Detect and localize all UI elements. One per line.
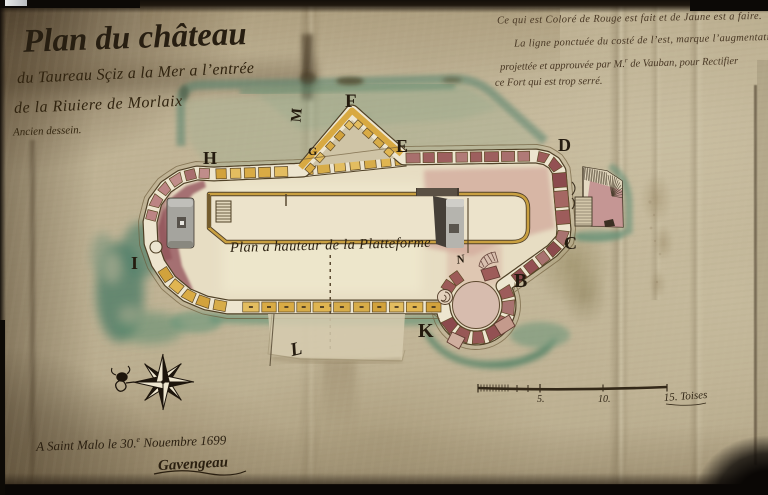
svg-text:G: G xyxy=(308,144,317,158)
svg-text:K: K xyxy=(418,320,434,342)
svg-text:I: I xyxy=(131,253,138,273)
svg-text:M: M xyxy=(288,107,305,123)
svg-text:D: D xyxy=(558,135,571,155)
svg-text:F: F xyxy=(345,91,357,112)
svg-text:E: E xyxy=(396,136,408,156)
svg-text:C: C xyxy=(564,233,577,253)
svg-text:H: H xyxy=(203,148,217,168)
svg-text:15. Toises: 15. Toises xyxy=(663,389,707,404)
svg-text:B: B xyxy=(514,270,527,292)
svg-text:10.: 10. xyxy=(598,394,611,405)
svg-text:5.: 5. xyxy=(537,394,545,405)
